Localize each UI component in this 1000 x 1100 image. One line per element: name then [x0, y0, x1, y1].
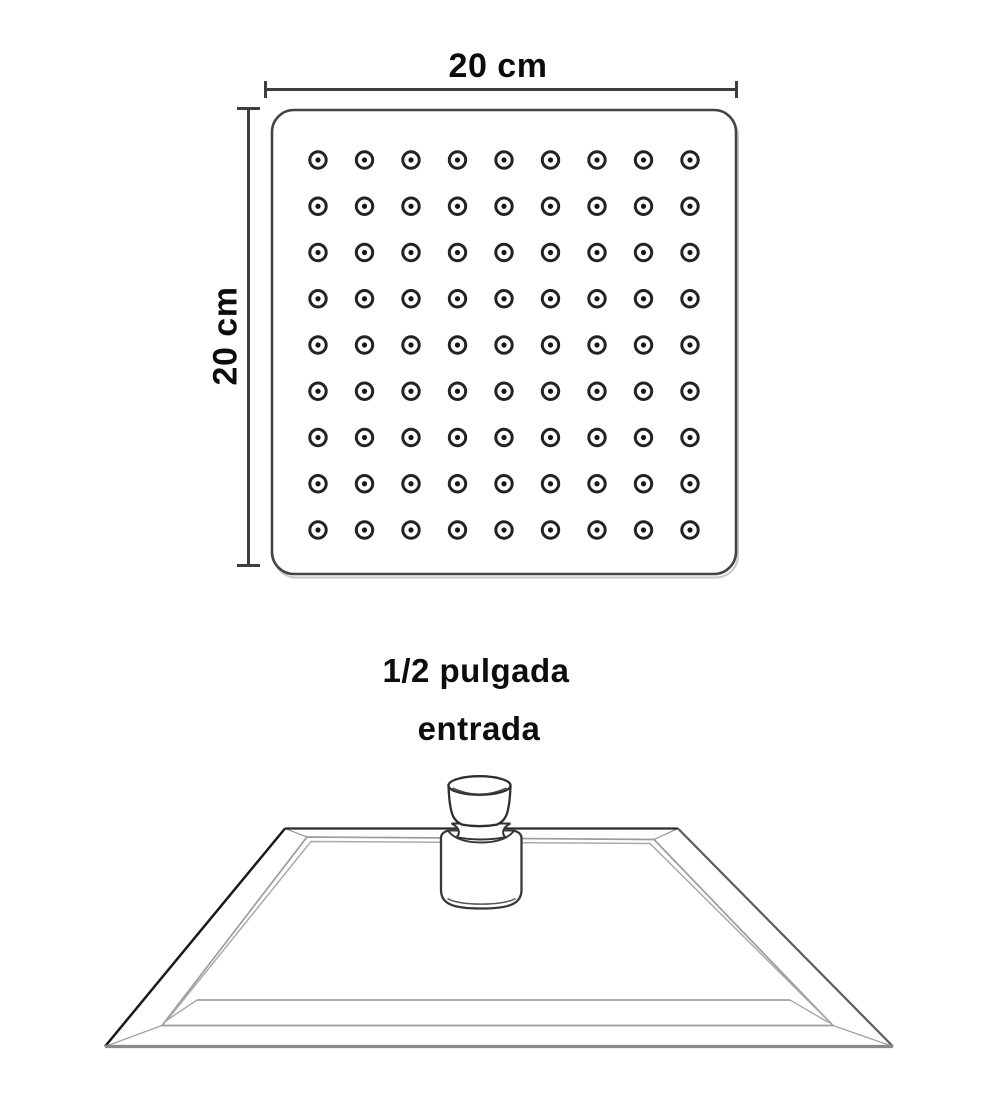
outer-edge-left	[105, 829, 285, 1047]
nozzle-dot	[594, 157, 599, 162]
nozzle-dot	[548, 296, 553, 301]
bevel-miter-right	[790, 1000, 829, 1023]
nozzle-dot	[594, 250, 599, 255]
nozzle-dot	[455, 389, 460, 394]
connector-cap-top	[449, 776, 511, 795]
nozzle-dot	[548, 435, 553, 440]
nozzle-grid	[310, 152, 698, 538]
nozzle-dot	[594, 435, 599, 440]
nozzle-dot	[641, 157, 646, 162]
side-view-drawing	[105, 776, 893, 1046]
nozzle-dot	[594, 296, 599, 301]
nozzle-dot	[594, 204, 599, 209]
nozzle-dot	[408, 250, 413, 255]
top-view-drawing	[272, 110, 738, 578]
nozzle-dot	[687, 435, 692, 440]
nozzle-dot	[408, 204, 413, 209]
inlet-entry-label: entrada	[418, 710, 541, 748]
nozzle-dot	[501, 342, 506, 347]
nozzle-dot	[501, 157, 506, 162]
nozzle-dot	[455, 204, 460, 209]
nozzle-dot	[315, 296, 320, 301]
nozzle-dot	[548, 342, 553, 347]
nozzle-dot	[501, 481, 506, 486]
nozzle-dot	[687, 389, 692, 394]
nozzle-dot	[408, 389, 413, 394]
inlet-size-label: 1/2 pulgada	[382, 652, 569, 690]
nozzle-dot	[501, 204, 506, 209]
nozzle-dot	[687, 157, 692, 162]
nozzle-dot	[641, 527, 646, 532]
nozzle-dot	[641, 342, 646, 347]
nozzle-dot	[548, 481, 553, 486]
nozzle-dot	[548, 157, 553, 162]
outer-edge-right	[678, 829, 893, 1047]
nozzle-dot	[455, 435, 460, 440]
nozzle-dot	[315, 389, 320, 394]
nozzle-dot	[408, 157, 413, 162]
nozzle-dot	[548, 250, 553, 255]
nozzle-dot	[501, 435, 506, 440]
width-dimension-label: 20 cm	[449, 47, 548, 86]
nozzle-dot	[641, 389, 646, 394]
nozzle-dot	[641, 435, 646, 440]
nozzle-dot	[362, 527, 367, 532]
nozzle-dot	[455, 527, 460, 532]
nozzle-dot	[362, 342, 367, 347]
nozzle-dot	[315, 435, 320, 440]
nozzle-dot	[362, 157, 367, 162]
nozzle-dot	[548, 389, 553, 394]
corner-miter-top-right	[654, 829, 678, 840]
nozzle-dot	[455, 250, 460, 255]
nozzle-dot	[315, 157, 320, 162]
nozzle-dot	[455, 157, 460, 162]
corner-miter-top-left	[285, 829, 307, 838]
nozzle-dot	[687, 527, 692, 532]
nozzle-dot	[408, 296, 413, 301]
nozzle-dot	[408, 435, 413, 440]
nozzle-dot	[687, 204, 692, 209]
nozzle-dot	[501, 389, 506, 394]
nozzle-dot	[594, 481, 599, 486]
nozzle-dot	[501, 527, 506, 532]
nozzle-dot	[315, 250, 320, 255]
nozzle-dot	[455, 481, 460, 486]
nozzle-dot	[548, 204, 553, 209]
height-dimension-label: 20 cm	[207, 287, 246, 386]
nozzle-dot	[362, 389, 367, 394]
nozzle-dot	[362, 250, 367, 255]
nozzle-dot	[315, 342, 320, 347]
nozzle-dot	[408, 527, 413, 532]
nozzle-dot	[594, 527, 599, 532]
nozzle-dot	[594, 389, 599, 394]
nozzle-dot	[594, 342, 599, 347]
diagram-linework	[0, 0, 1000, 1100]
nozzle-dot	[687, 250, 692, 255]
nozzle-dot	[501, 296, 506, 301]
nozzle-dot	[687, 342, 692, 347]
nozzle-dot	[315, 527, 320, 532]
nozzle-dot	[455, 342, 460, 347]
nozzle-dot	[548, 527, 553, 532]
nozzle-dot	[455, 296, 460, 301]
nozzle-dot	[362, 296, 367, 301]
inlet-connector	[441, 776, 522, 908]
nozzle-dot	[315, 204, 320, 209]
nozzle-dot	[408, 481, 413, 486]
nozzle-dot	[362, 435, 367, 440]
nozzle-dot	[687, 296, 692, 301]
nozzle-dot	[641, 250, 646, 255]
nozzle-dot	[362, 204, 367, 209]
showerhead-diagram: 20 cm 20 cm 1/2 pulgada entrada	[0, 0, 1000, 1100]
nozzle-dot	[641, 204, 646, 209]
nozzle-dot	[501, 250, 506, 255]
nozzle-dot	[641, 296, 646, 301]
nozzle-dot	[315, 481, 320, 486]
nozzle-dot	[641, 481, 646, 486]
nozzle-dot	[408, 342, 413, 347]
nozzle-dot	[687, 481, 692, 486]
nozzle-dot	[362, 481, 367, 486]
